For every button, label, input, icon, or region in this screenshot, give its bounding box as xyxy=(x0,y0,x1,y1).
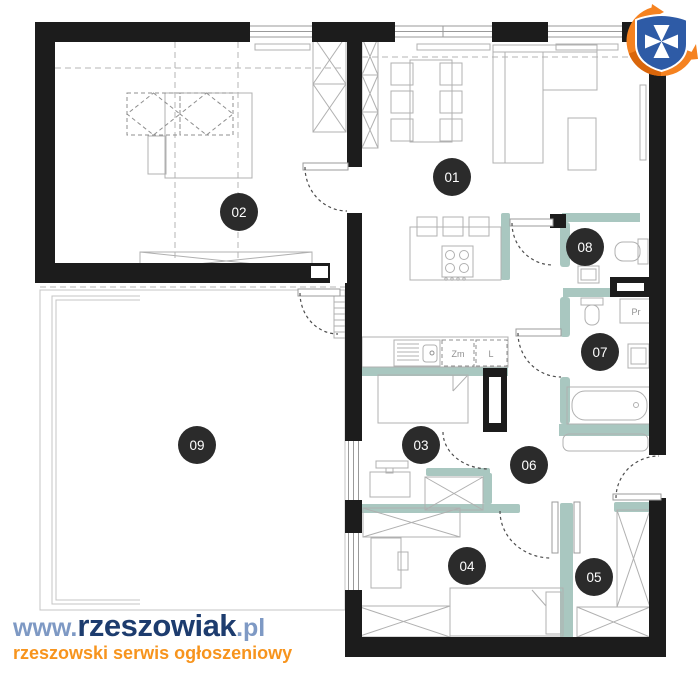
wardrobe xyxy=(313,36,346,132)
entrance-door-leaf xyxy=(613,494,661,500)
room-badge-04: 04 xyxy=(448,547,486,585)
room-02-furniture xyxy=(127,36,346,270)
radiator-icon xyxy=(640,85,646,160)
desk xyxy=(370,472,410,497)
corner-sofa xyxy=(493,45,597,163)
watermark-www: www. xyxy=(13,614,77,642)
room-badge-07: 07 xyxy=(581,333,619,371)
floor-plan-page: 01 02 03 04 05 06 07 08 09 Zm L Pr www.r… xyxy=(0,0,699,675)
watermark-tagline: rzeszowski serwis ogłoszeniowy xyxy=(13,644,292,663)
svg-text:05: 05 xyxy=(586,570,601,585)
radiator-icon xyxy=(255,44,310,50)
door-leaf xyxy=(426,468,490,476)
rzeszowiak-logo xyxy=(631,4,698,72)
vent-shaft xyxy=(610,277,652,297)
nightstand xyxy=(148,136,166,174)
dining-table-set xyxy=(391,60,462,142)
floor-plan: 01 02 03 04 05 06 07 08 09 Zm L Pr xyxy=(0,0,699,675)
watermark-name: rzeszowiak xyxy=(77,608,236,643)
room-badge-05: 05 xyxy=(575,558,613,596)
wardrobe xyxy=(617,510,650,607)
svg-text:07: 07 xyxy=(592,345,607,360)
watermark-tld: .pl xyxy=(236,614,265,642)
door-leaf xyxy=(516,329,561,336)
site-watermark: www.rzeszowiak.pl rzeszowski serwis ogło… xyxy=(13,610,292,662)
door-jamb xyxy=(552,502,558,553)
svg-text:06: 06 xyxy=(521,458,536,473)
svg-text:01: 01 xyxy=(444,170,459,185)
door-leaf xyxy=(303,163,348,170)
room-badge-01: 01 xyxy=(433,158,471,196)
tall-cabinet xyxy=(362,38,378,148)
radiator-icon xyxy=(417,44,490,50)
roof-slope-boxes xyxy=(127,93,233,135)
door-leaf xyxy=(298,289,340,296)
room-badge-03: 03 xyxy=(402,426,440,464)
washer-label: Pr xyxy=(632,307,641,317)
faucet-icon xyxy=(430,351,434,355)
bed-single xyxy=(378,375,468,423)
wardrobe xyxy=(577,607,650,637)
coffee-table xyxy=(568,118,596,170)
chair xyxy=(398,552,408,570)
door-leaf xyxy=(510,219,553,226)
window-top-2 xyxy=(395,26,492,37)
shelf xyxy=(376,461,408,468)
room-badge-08: 08 xyxy=(566,228,604,266)
watermark-url: www.rzeszowiak.pl xyxy=(13,610,292,643)
kitchen-island xyxy=(410,227,501,280)
room-badge-09: 09 xyxy=(178,426,216,464)
hob-icon xyxy=(442,246,473,280)
room-badge-02: 02 xyxy=(220,193,258,231)
wardrobe xyxy=(357,606,450,637)
svg-text:03: 03 xyxy=(413,438,428,453)
svg-text:09: 09 xyxy=(189,438,204,453)
radiator-icon xyxy=(334,296,346,338)
room-01-furniture xyxy=(362,38,646,170)
bathtub-icon xyxy=(567,387,652,424)
svg-text:02: 02 xyxy=(231,205,246,220)
room-badge-06: 06 xyxy=(510,446,548,484)
window-top-3 xyxy=(548,26,622,37)
desk xyxy=(371,538,401,588)
dishwasher-label: Zm xyxy=(452,349,465,359)
kitchen-counter xyxy=(362,337,508,367)
door-jamb xyxy=(574,502,580,553)
fridge-label: L xyxy=(488,349,493,359)
pillow xyxy=(546,592,561,634)
bath-mat xyxy=(563,434,648,451)
window-terrace-1 xyxy=(349,441,359,500)
vent-shaft xyxy=(483,368,507,432)
toilet-icon xyxy=(615,242,640,261)
kitchen-furniture xyxy=(362,217,508,367)
toilet-icon xyxy=(585,305,599,325)
toilet-tank xyxy=(581,298,603,305)
window-top-1 xyxy=(250,26,312,37)
svg-text:04: 04 xyxy=(459,559,475,574)
svg-text:08: 08 xyxy=(577,240,592,255)
window-terrace-2 xyxy=(349,533,359,590)
